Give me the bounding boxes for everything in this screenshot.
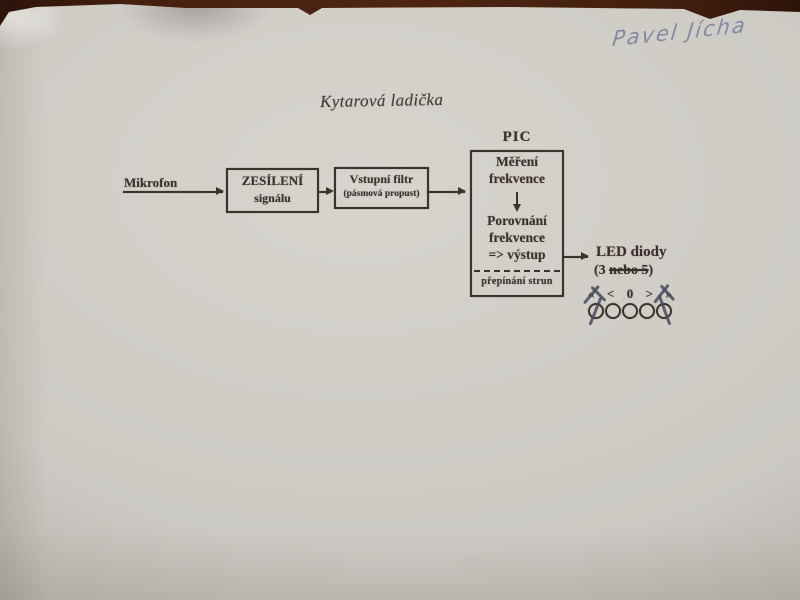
amp-to-filter-arrowhead-icon: [326, 187, 334, 195]
led-count-label: (3 nebo 5): [594, 263, 653, 279]
mic-arrowhead-icon: [216, 187, 224, 195]
page-title: Kytarová ladička: [320, 90, 444, 112]
pic-label: PIC: [470, 129, 564, 146]
led-circle: [639, 303, 655, 319]
amp-box-line1: ZESÍLENÍ: [228, 173, 317, 189]
mic-arrow-line: [123, 191, 223, 193]
filter-box-line2: (pásmová propust): [336, 189, 427, 199]
photo-of-paper: Pavel Jícha Kytarová ladička Mikrofon ZE…: [0, 0, 800, 600]
handwritten-name: Pavel Jícha: [611, 13, 748, 52]
pic-compare-line3: => výstup: [472, 247, 562, 263]
led-count-prefix: (3: [594, 263, 609, 278]
led-symbol-center: 0: [627, 286, 634, 302]
led-circles: [588, 303, 672, 319]
amp-box-line2: signálu: [228, 191, 317, 206]
filter-box: Vstupní filtr (pásmová propust): [334, 167, 429, 209]
pic-box: Měření frekvence Porovnání frekvence => …: [470, 150, 564, 297]
pic-compare-line2: frekvence: [472, 230, 562, 246]
filter-box-line1: Vstupní filtr: [336, 172, 427, 187]
led-circle: [622, 303, 638, 319]
pic-dashed-divider: [474, 270, 560, 272]
led-symbol-left: <: [607, 286, 614, 302]
pic-measure-line2: frekvence: [472, 171, 562, 187]
pic-to-led-arrowhead-icon: [581, 252, 589, 260]
pic-compare-line1: Porovnání: [472, 213, 562, 229]
led-symbol-right: >: [646, 286, 653, 302]
block-diagram: Pavel Jícha Kytarová ladička Mikrofon ZE…: [0, 0, 800, 600]
amp-box: ZESÍLENÍ signálu: [226, 168, 319, 213]
pic-measure-line1: Měření: [472, 154, 562, 170]
led-circle: [605, 303, 621, 319]
led-count-struck: nebo 5: [609, 263, 648, 278]
pic-internal-arrowhead-icon: [513, 204, 521, 212]
filter-to-pic-arrowhead-icon: [458, 187, 466, 195]
led-count-suffix: ): [648, 263, 653, 278]
pic-bottom-label: přepínání strun: [472, 276, 562, 287]
mikrofon-label: Mikrofon: [124, 175, 177, 191]
led-label: LED diody: [596, 244, 666, 261]
